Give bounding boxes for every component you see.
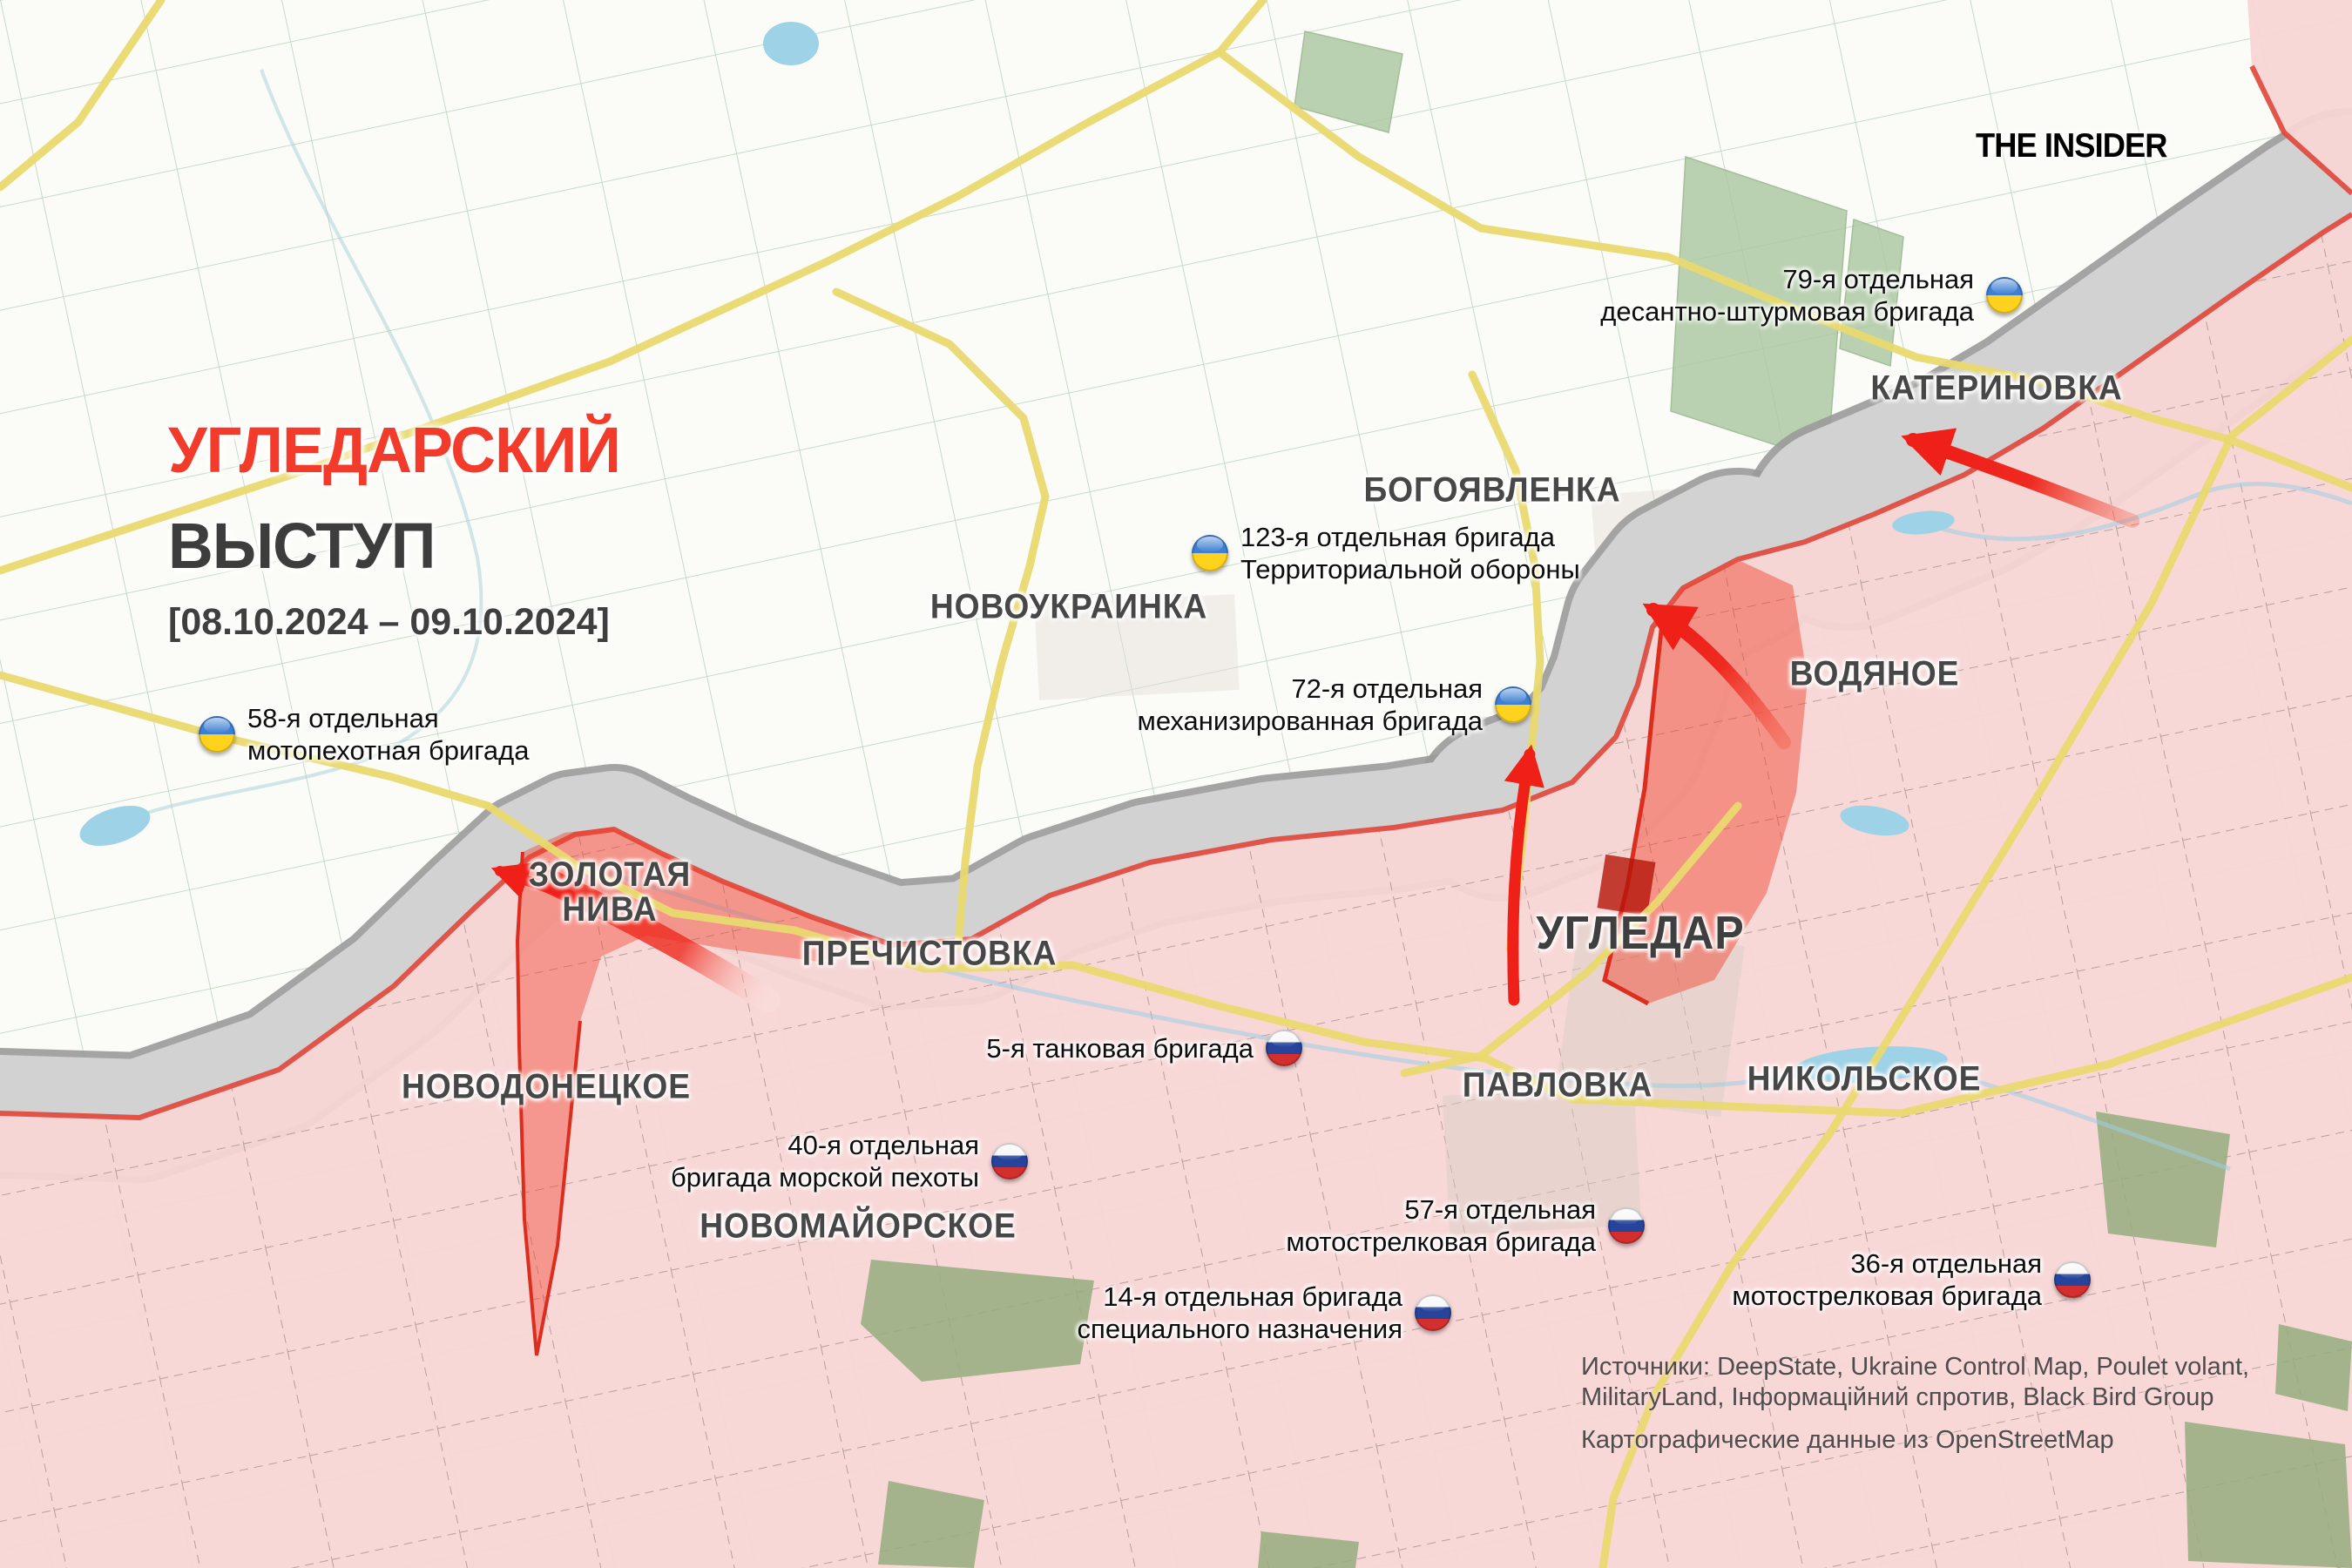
title-accent: УГЛЕДАРСКИЙ bbox=[168, 416, 620, 484]
map-title: УГЛЕДАРСКИЙ ВЫСТУП [08.10.2024 – 09.10.2… bbox=[168, 416, 634, 644]
unit-text: 79-я отдельная десантно-штурмовая бригад… bbox=[1600, 263, 1974, 328]
unit-text: 5-я танковая бригада bbox=[986, 1032, 1254, 1064]
russia-flag-icon bbox=[1415, 1294, 1451, 1331]
russia-flag-icon bbox=[1608, 1207, 1645, 1244]
unit-label-79th-air-assault-brigade: 79-я отдельная десантно-штурмовая бригад… bbox=[1600, 263, 2023, 328]
unit-text: 58-я отдельная мотопехотная бригада bbox=[247, 702, 530, 767]
unit-text: 14-я отдельная бригада специального назн… bbox=[1078, 1281, 1402, 1345]
city-label-zolota-nyva: ЗОЛОТАЯ НИВА bbox=[504, 857, 715, 927]
unit-label-72nd-mechanized-brigade: 72-я отдельная механизированная бригада bbox=[1138, 672, 1531, 737]
unit-text: 123-я отдельная бригада Территориальной … bbox=[1240, 521, 1580, 585]
city-label-pavlivka: ПАВЛОВКА bbox=[1463, 1066, 1652, 1105]
unit-text: 72-я отдельная механизированная бригада bbox=[1138, 672, 1483, 737]
ukraine-flag-icon bbox=[1986, 277, 2023, 314]
sources-line1: Источники: DeepState, Ukraine Control Ma… bbox=[1581, 1352, 2249, 1382]
pond bbox=[763, 22, 819, 65]
russia-flag-icon bbox=[1266, 1030, 1302, 1066]
ukraine-flag-icon bbox=[199, 716, 235, 753]
sources-line3: Картографические данные из OpenStreetMap bbox=[1581, 1425, 2249, 1456]
title-main: ВЫСТУП bbox=[168, 512, 620, 580]
ukraine-flag-icon bbox=[1495, 686, 1531, 723]
ukraine-flag-icon bbox=[1192, 535, 1228, 571]
russia-flag-icon bbox=[991, 1143, 1028, 1179]
city-label-katerynivka: КАТЕРИНОВКА bbox=[1870, 369, 2122, 409]
city-label-nikolske: НИКОЛЬСКОЕ bbox=[1747, 1060, 1982, 1099]
unit-label-14th-spetsnaz-brigade: 14-я отдельная бригада специального назн… bbox=[1078, 1281, 1451, 1345]
unit-text: 57-я отдельная мотострелковая бригада bbox=[1286, 1193, 1596, 1258]
sources-attribution: Источники: DeepState, Ukraine Control Ma… bbox=[1581, 1352, 2249, 1456]
unit-label-5th-tank-brigade: 5-я танковая бригада bbox=[986, 1030, 1302, 1066]
city-label-vuhledar: УГЛЕДАР bbox=[1536, 906, 1744, 960]
russia-flag-icon bbox=[2054, 1261, 2091, 1298]
the-insider-logo: THE INSIDER bbox=[1976, 127, 2167, 166]
city-label-novomaiorske: НОВОМАЙОРСКОЕ bbox=[700, 1207, 1016, 1247]
city-label-vodiane: ВОДЯНОЕ bbox=[1790, 655, 1960, 694]
city-label-prechystivka: ПРЕЧИСТОВКА bbox=[802, 935, 1058, 974]
unit-label-40th-marine-brigade: 40-я отдельная бригада морской пехоты bbox=[671, 1129, 1028, 1193]
unit-label-57th-motorized-rifle-brigade: 57-я отдельная мотострелковая бригада bbox=[1286, 1193, 1645, 1258]
unit-text: 40-я отдельная бригада морской пехоты bbox=[671, 1129, 979, 1193]
city-label-novodonetske: НОВОДОНЕЦКОЕ bbox=[402, 1068, 691, 1107]
sources-line2: MilitaryLand, Інформаційний спротив, Bla… bbox=[1581, 1382, 2249, 1413]
unit-label-123rd-territorial-defense-brigade: 123-я отдельная бригада Территориальной … bbox=[1192, 521, 1580, 585]
city-label-novoukrainka: НОВОУКРАИНКА bbox=[930, 588, 1207, 627]
unit-label-58th-motorized-infantry-brigade: 58-я отдельная мотопехотная бригада bbox=[199, 702, 530, 767]
unit-text: 36-я отдельная мотострелковая бригада bbox=[1732, 1247, 2042, 1312]
title-date-range: [08.10.2024 – 09.10.2024] bbox=[168, 601, 634, 644]
city-label-bogoyavlenka: БОГОЯВЛЕНКА bbox=[1364, 471, 1621, 510]
map-canvas: УГЛЕДАРСКИЙ ВЫСТУП [08.10.2024 – 09.10.2… bbox=[0, 0, 2352, 1568]
unit-label-36th-motorized-rifle-brigade: 36-я отдельная мотострелковая бригада bbox=[1732, 1247, 2091, 1312]
